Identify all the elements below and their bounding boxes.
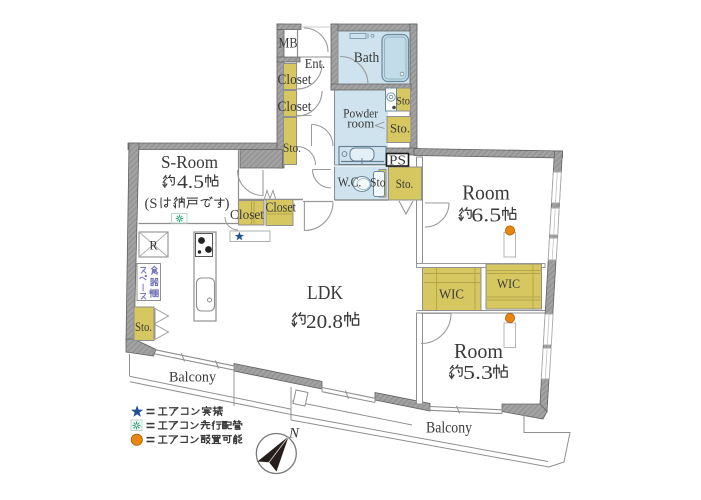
svg-text:S-Room: S-Room — [161, 152, 218, 172]
svg-text:Bath: Bath — [354, 50, 380, 66]
svg-text:Sto.: Sto. — [283, 140, 301, 155]
svg-text:Room: Room — [454, 339, 503, 363]
svg-text:Balcony: Balcony — [426, 420, 472, 437]
svg-text:LDK: LDK — [307, 282, 343, 304]
svg-text:Room: Room — [462, 181, 510, 205]
svg-text:Closet: Closet — [230, 208, 264, 223]
svg-text:(S: (S — [145, 196, 158, 212]
svg-text:Sto.: Sto. — [390, 121, 410, 136]
svg-text:R: R — [149, 239, 158, 253]
svg-text:Sto: Sto — [396, 94, 410, 108]
svg-text:Sto.: Sto. — [396, 176, 414, 191]
svg-text:Sto: Sto — [370, 176, 386, 190]
svg-text:Closet: Closet — [265, 200, 296, 215]
svg-text:6.5: 6.5 — [471, 205, 501, 227]
svg-text:Closet: Closet — [278, 99, 313, 115]
svg-text:W.C.: W.C. — [338, 176, 362, 191]
svg-text:WIC: WIC — [497, 276, 520, 291]
svg-text:20.8: 20.8 — [306, 311, 343, 333]
svg-text:5.3: 5.3 — [463, 362, 493, 384]
svg-text:WIC: WIC — [439, 287, 464, 302]
svg-text:room: room — [347, 117, 374, 131]
svg-text:Balcony: Balcony — [169, 370, 216, 386]
svg-text:Sto.: Sto. — [135, 320, 152, 334]
svg-text:Ent.: Ent. — [305, 57, 326, 72]
svg-text:): ) — [225, 196, 230, 212]
svg-text:PS: PS — [389, 152, 406, 167]
svg-text:Closet: Closet — [278, 72, 313, 88]
svg-text:MB: MB — [279, 36, 298, 52]
svg-text:4.5: 4.5 — [177, 172, 204, 193]
